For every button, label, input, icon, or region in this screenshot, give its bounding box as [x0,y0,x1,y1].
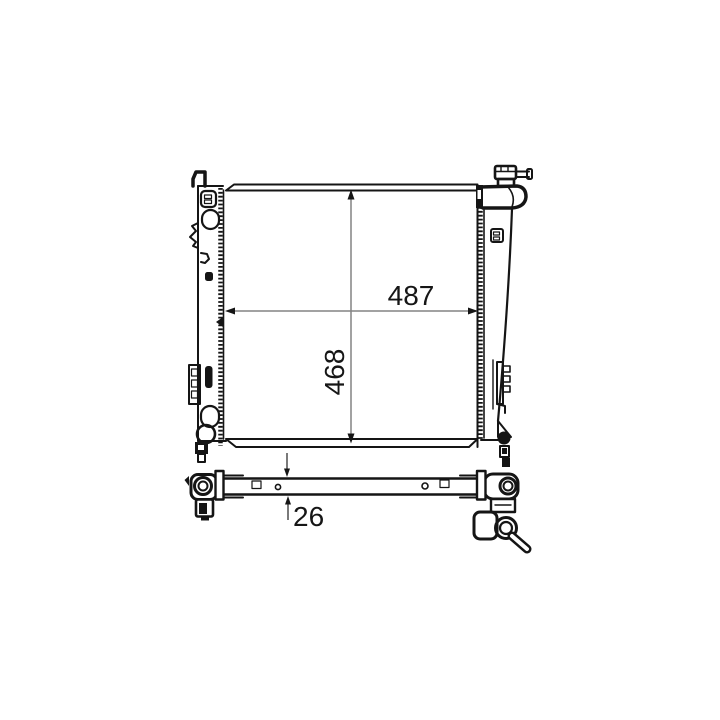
inlet-fitting [185,471,224,521]
bracket-tooth [503,386,510,392]
bracket-glyph [205,195,212,199]
elbow-inner-curve [508,187,513,207]
filler-assembly-bottom [474,458,527,549]
top-mounting-tab [193,172,205,186]
bracket-tooth [503,376,510,382]
bracket-tooth [503,366,510,372]
fitting-notch [185,476,190,486]
thickness-dimension-label: 26 [293,501,324,532]
assembly-tab [502,458,510,467]
lower-slot-hole [205,366,213,388]
right-drain-boss [498,432,511,445]
bracket-glyph [205,200,212,204]
arrowhead-down [284,469,290,478]
radiator-core [216,184,481,447]
elbow-flange-slot [478,190,482,199]
bracket-hole [192,391,198,398]
fitting-foot-slot [199,503,207,514]
width-dimension-label: 487 [388,280,435,311]
outlet-flange [477,471,486,500]
right-tank [481,208,512,461]
fitting-flange [216,471,224,500]
hook-tab [201,253,209,263]
left-foot-slot [198,445,204,450]
height-dimension-label: 468 [319,349,350,396]
bracket-glyph [494,232,500,235]
fitting-foot-pin [201,517,209,521]
bracket-glyph [494,237,500,240]
bracket-hole [192,369,198,376]
bottom-view [185,458,528,549]
radiator-cap [495,166,516,179]
bracket-hole [192,380,198,387]
radiator-drawing-page: 487 468 26 [0,0,720,720]
slot-hole [205,272,213,281]
cap-housing [474,512,497,539]
right-foot-slot [502,448,507,454]
filler-elbow [479,186,526,208]
front-view [189,166,532,462]
arrowhead-up [285,496,291,505]
lower-oval-port [201,406,219,427]
radiator-technical-drawing: 487 468 26 [0,0,720,720]
left-foot-pin [198,454,205,462]
upper-oval-port [202,210,219,229]
filler-neck [476,166,532,208]
spring-clip [190,223,198,248]
